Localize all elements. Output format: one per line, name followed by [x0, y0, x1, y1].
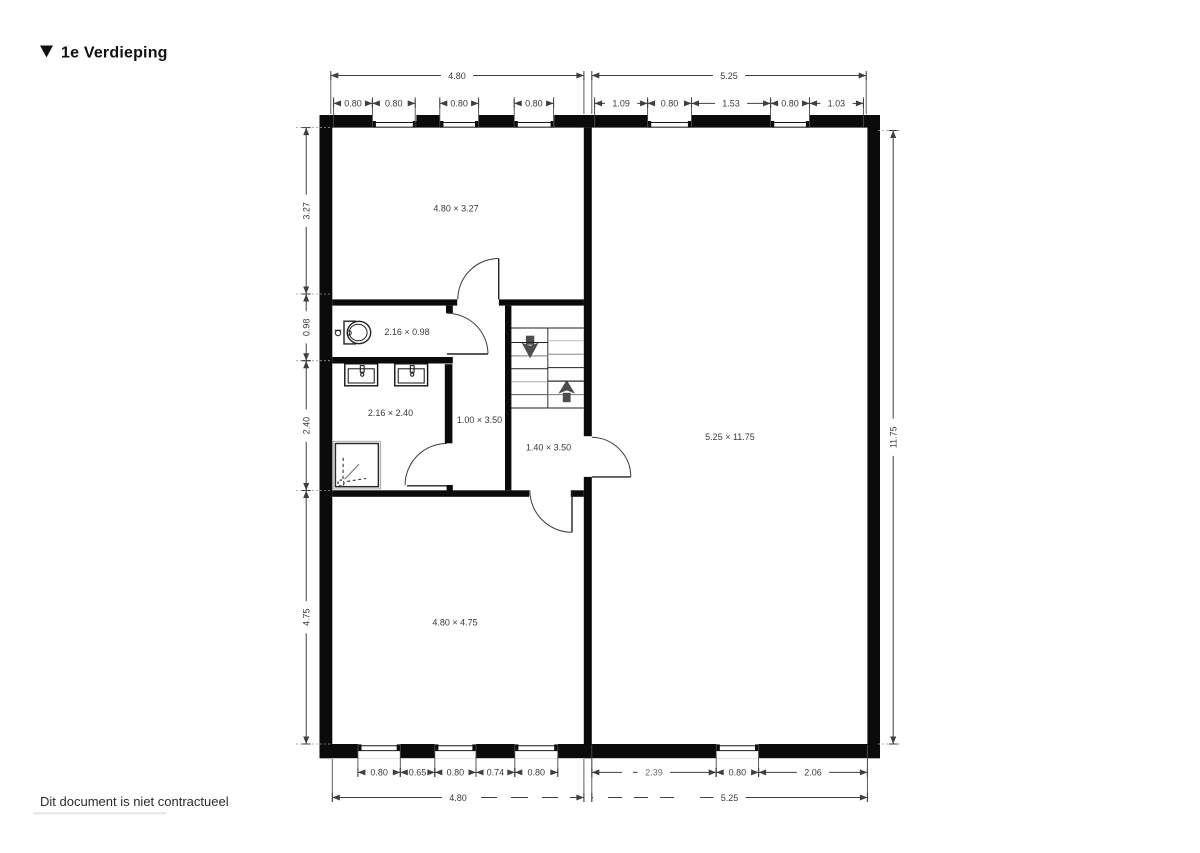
svg-text:5.25: 5.25	[721, 793, 739, 803]
svg-text:0.80: 0.80	[729, 768, 747, 778]
svg-text:0.80: 0.80	[525, 99, 543, 109]
svg-text:2.39: 2.39	[645, 768, 663, 778]
svg-text:2.06: 2.06	[804, 768, 822, 778]
svg-text:2.16 × 0.98: 2.16 × 0.98	[384, 327, 429, 337]
svg-text:0.74: 0.74	[487, 768, 505, 778]
svg-text:5.25: 5.25	[720, 71, 738, 81]
svg-text:4.80: 4.80	[449, 793, 467, 803]
svg-text:1e Verdieping: 1e Verdieping	[61, 45, 168, 62]
svg-text:0.80: 0.80	[781, 99, 799, 109]
svg-text:2.40: 2.40	[302, 417, 312, 435]
svg-text:4.80 × 4.75: 4.80 × 4.75	[432, 617, 477, 627]
svg-text:Dit document is niet contractu: Dit document is niet contractueel	[40, 794, 229, 809]
svg-text:4.80 × 3.27: 4.80 × 3.27	[433, 203, 478, 213]
svg-text:4.80: 4.80	[448, 71, 466, 81]
svg-text:2.16 × 2.40: 2.16 × 2.40	[368, 408, 413, 418]
svg-text:1.03: 1.03	[828, 99, 846, 109]
svg-text:0.65: 0.65	[409, 768, 427, 778]
svg-text:4.75: 4.75	[302, 608, 312, 626]
svg-text:0.80: 0.80	[450, 99, 468, 109]
svg-text:0.80: 0.80	[344, 99, 362, 109]
svg-text:1.53: 1.53	[722, 99, 740, 109]
svg-text:0.80: 0.80	[385, 99, 403, 109]
svg-text:0.80: 0.80	[370, 768, 388, 778]
svg-text:11.75: 11.75	[889, 426, 899, 448]
svg-text:1.40 × 3.50: 1.40 × 3.50	[526, 442, 571, 452]
svg-text:0.98: 0.98	[302, 319, 312, 337]
svg-text:5.25 × 11.75: 5.25 × 11.75	[705, 432, 755, 442]
svg-text:3.27: 3.27	[302, 202, 312, 220]
svg-text:1.09: 1.09	[612, 99, 630, 109]
svg-text:0.80: 0.80	[447, 768, 465, 778]
svg-text:0.80: 0.80	[528, 768, 546, 778]
svg-text:0.80: 0.80	[661, 99, 679, 109]
svg-text:1.00 × 3.50: 1.00 × 3.50	[457, 415, 502, 425]
